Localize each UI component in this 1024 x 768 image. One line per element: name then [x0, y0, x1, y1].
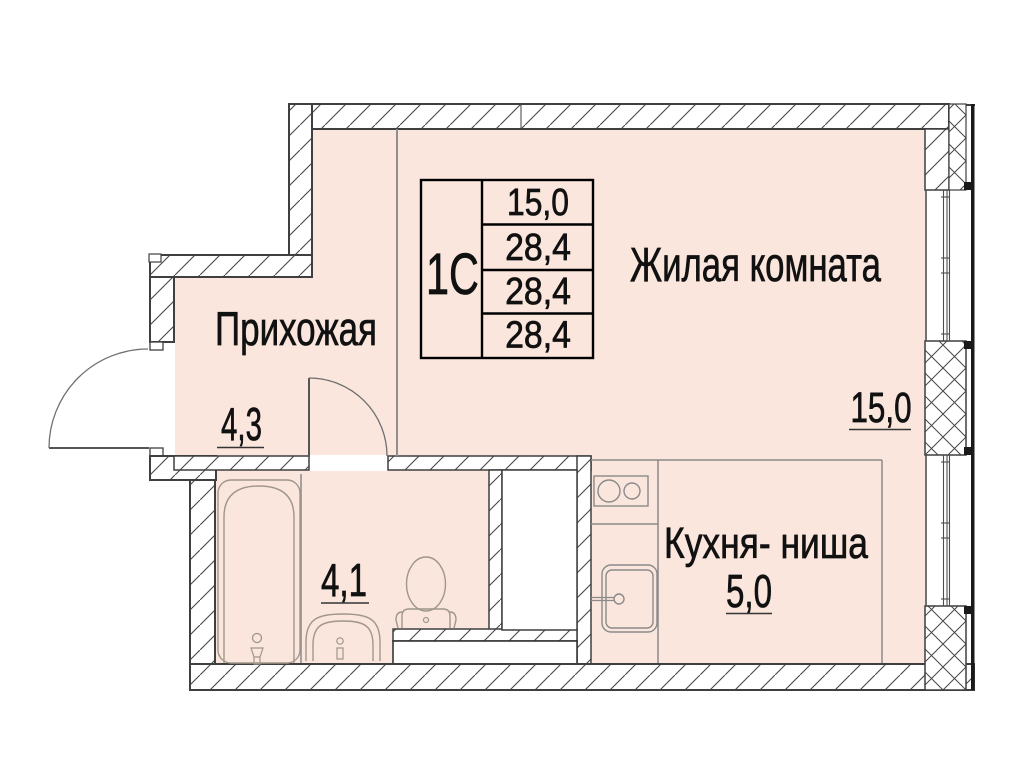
svg-text:Кухня- ниша: Кухня- ниша — [664, 519, 869, 567]
svg-text:5,0: 5,0 — [726, 567, 772, 617]
svg-text:4,1: 4,1 — [321, 556, 367, 606]
svg-text:28,4: 28,4 — [505, 269, 571, 312]
svg-text:28,4: 28,4 — [505, 225, 571, 268]
svg-text:15,0: 15,0 — [850, 383, 911, 431]
svg-text:28,4: 28,4 — [505, 313, 571, 356]
svg-text:4,3: 4,3 — [221, 400, 262, 451]
svg-text:Прихожая: Прихожая — [215, 303, 377, 355]
svg-text:15,0: 15,0 — [507, 181, 569, 223]
svg-text:Жилая комната: Жилая комната — [630, 237, 882, 291]
svg-text:1С: 1С — [426, 241, 479, 307]
